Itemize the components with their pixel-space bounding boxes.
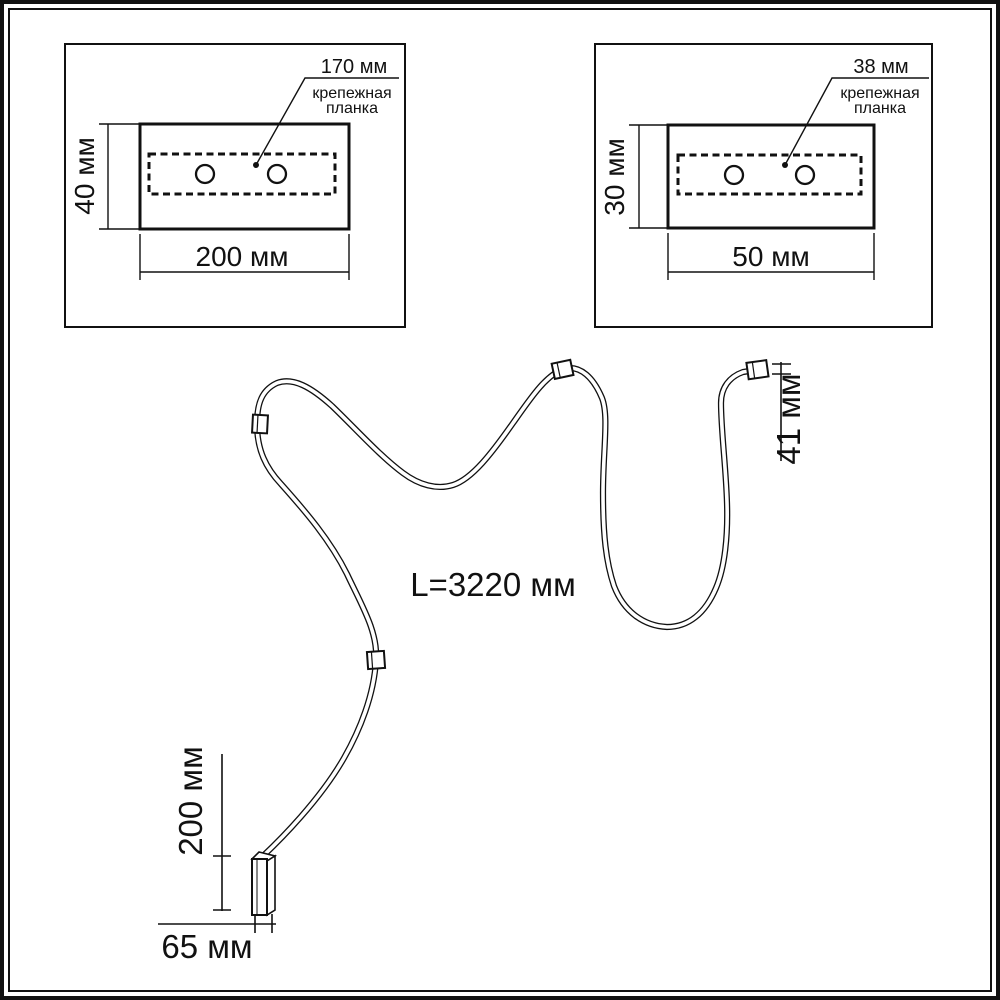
width-dimension: 200 мм: [140, 234, 349, 280]
cable-clip-top: [552, 360, 574, 379]
lamp-head: [252, 852, 275, 915]
cable-clip-left: [252, 415, 268, 434]
plate-outline: [668, 125, 874, 228]
cable-core: [257, 368, 756, 856]
tip-dimension-label: 41 мм: [770, 373, 807, 464]
head-length-dimension: 200 мм: [172, 746, 231, 911]
width-dimension: 50 мм: [668, 233, 874, 280]
plate-outline: [140, 124, 349, 229]
height-dimension-label: 30 мм: [599, 138, 630, 215]
head-width-dimension-label: 65 мм: [161, 928, 252, 965]
head-length-dimension-label: 200 мм: [172, 746, 209, 856]
screw-hole-right: [796, 166, 814, 184]
diagram-canvas: 41 мм 200 мм 65 мм: [0, 0, 1000, 1000]
cable-end-connector: [746, 360, 768, 379]
hole-spacing-label: 38 мм: [853, 56, 908, 78]
cable-clip-middle: [367, 651, 385, 669]
width-dimension-label: 200 мм: [196, 241, 289, 272]
mounting-plate-panel-left: 170 мм крепежная планка 40 мм 200 мм: [64, 43, 406, 328]
height-dimension-label: 40 мм: [69, 137, 100, 214]
screw-hole-left: [725, 166, 743, 184]
flexible-cable: [257, 368, 756, 856]
height-dimension: 40 мм: [69, 124, 141, 229]
hole-spacing-label: 170 мм: [321, 56, 387, 78]
head-width-dimension: 65 мм: [158, 914, 276, 965]
tip-dimension: 41 мм: [770, 362, 807, 465]
cable-outline: [257, 368, 756, 856]
screw-hole-left: [196, 165, 214, 183]
plate-name-line2: планка: [326, 100, 378, 117]
mounting-bar-dashed-outline: [678, 155, 861, 194]
width-dimension-label: 50 мм: [732, 241, 809, 272]
height-dimension: 30 мм: [599, 125, 671, 228]
mounting-plate-left-drawing: 170 мм крепежная планка 40 мм 200 мм: [66, 45, 404, 326]
screw-hole-right: [268, 165, 286, 183]
mounting-bar-dashed-outline: [149, 154, 335, 194]
mounting-plate-right-drawing: 38 мм крепежная планка 30 мм 50 мм: [596, 45, 931, 326]
cable-length-label: L=3220 мм: [410, 566, 576, 603]
plate-name-line2: планка: [854, 100, 906, 117]
mounting-plate-panel-right: 38 мм крепежная планка 30 мм 50 мм: [594, 43, 933, 328]
